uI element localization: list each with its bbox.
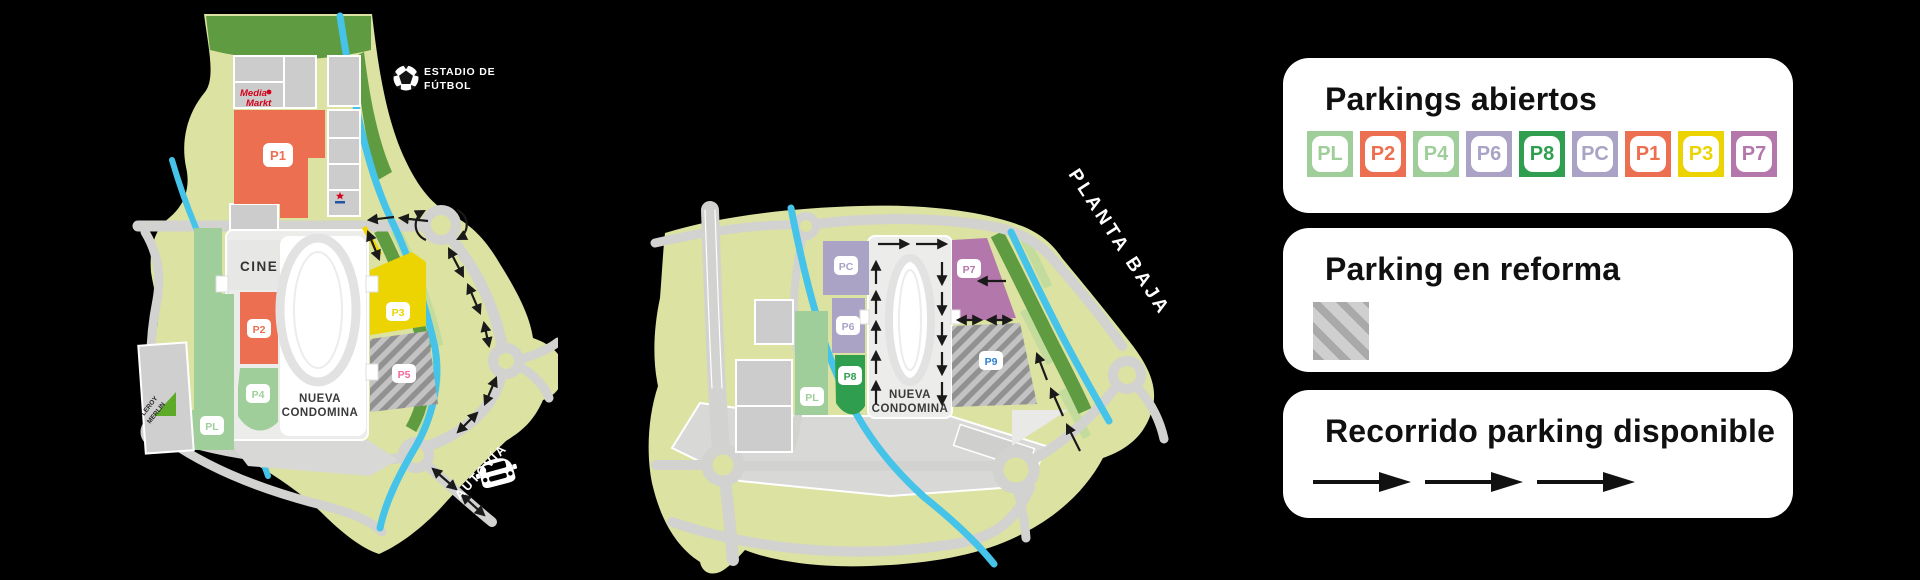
svg-text:NUEVA: NUEVA [889,389,931,401]
parking-badge-p7: P7 [957,259,981,278]
estadio-label: ESTADIO DE FÚTBOL [424,66,495,92]
route-arrow-icons [1313,462,1643,502]
svg-text:PL: PL [805,392,819,404]
parking-badge-p9: P9 [979,351,1003,370]
legend-badge-p4: P4 [1413,131,1459,177]
panel-parking-reforma: Parking en reforma [1283,228,1793,372]
svg-text:P1: P1 [270,148,286,163]
parking-badge-pl: PL [200,416,224,435]
legend-badge-p7: P7 [1731,131,1777,177]
right-arrow-icon [1537,472,1635,492]
right-arrow-icon [1425,472,1523,492]
panel-recorrido: Recorrido parking disponible [1283,390,1793,518]
svg-text:P3: P3 [392,307,405,319]
svg-text:P7: P7 [963,264,976,276]
panel-title-recorrido: Recorrido parking disponible [1325,414,1793,448]
svg-text:Markt: Markt [246,98,272,109]
svg-text:FÚTBOL: FÚTBOL [424,79,471,92]
panel-title-parking-reforma: Parking en reforma [1325,252,1793,286]
svg-text:PC: PC [839,261,854,273]
map-left: LEROY MERLIN Media Markt CINE NUEVA COND… [128,8,558,573]
cine-label: CINE [240,259,278,274]
legend-badge-p6: P6 [1466,131,1512,177]
svg-text:P4: P4 [252,389,265,401]
legend-badge-p8: P8 [1519,131,1565,177]
legend-badge-p2: P2 [1360,131,1406,177]
recorrido-arrows [1313,462,1793,507]
right-arrow-icon [1313,472,1411,492]
reforma-hatch-swatch [1313,302,1369,360]
parking-badge-p6: P6 [836,316,860,335]
panel-title-parkings-abiertos: Parkings abiertos [1325,82,1793,116]
svg-text:P9: P9 [985,356,998,368]
parking-badge-pl: PL [800,387,824,406]
svg-text:P8: P8 [844,371,857,383]
svg-text:ESTADIO DE: ESTADIO DE [424,66,495,78]
map-right: NUEVA CONDOMINA PLANTA BAJA PC P6 P8 PL … [560,148,1220,578]
parking-badge-pc: PC [834,256,858,275]
paved-apron [228,440,398,476]
legend-badge-pl: PL [1307,131,1353,177]
panel-parkings-abiertos: Parkings abiertos PL P2 P4 P6 P8 PC P1 [1283,58,1793,213]
leroy-merlin-store: LEROY MERLIN [138,342,193,453]
parking-map-infographic: LEROY MERLIN Media Markt CINE NUEVA COND… [0,0,1920,580]
svg-text:P2: P2 [253,324,266,336]
legend-badge-p3: P3 [1678,131,1724,177]
svg-text:CONDOMINA: CONDOMINA [282,407,359,419]
parking-badge-p5: P5 [392,364,416,383]
svg-text:NUEVA: NUEVA [299,393,341,405]
parking-badge-p3: P3 [386,302,410,321]
parking-badge-p1: P1 [263,143,293,167]
parking-badge-p4: P4 [246,384,270,403]
svg-text:P5: P5 [398,369,411,381]
svg-text:P6: P6 [842,321,855,333]
parking-badge-p8: P8 [838,366,862,385]
soccer-ball-icon [393,66,418,91]
svg-text:CONDOMINA: CONDOMINA [872,403,949,415]
svg-text:PL: PL [205,421,219,433]
legend-badge-pc: PC [1572,131,1618,177]
legend-badge-row: PL P2 P4 P6 P8 PC P1 P3 [1307,131,1793,177]
parking-badge-p2: P2 [247,319,271,338]
legend-badge-p1: P1 [1625,131,1671,177]
